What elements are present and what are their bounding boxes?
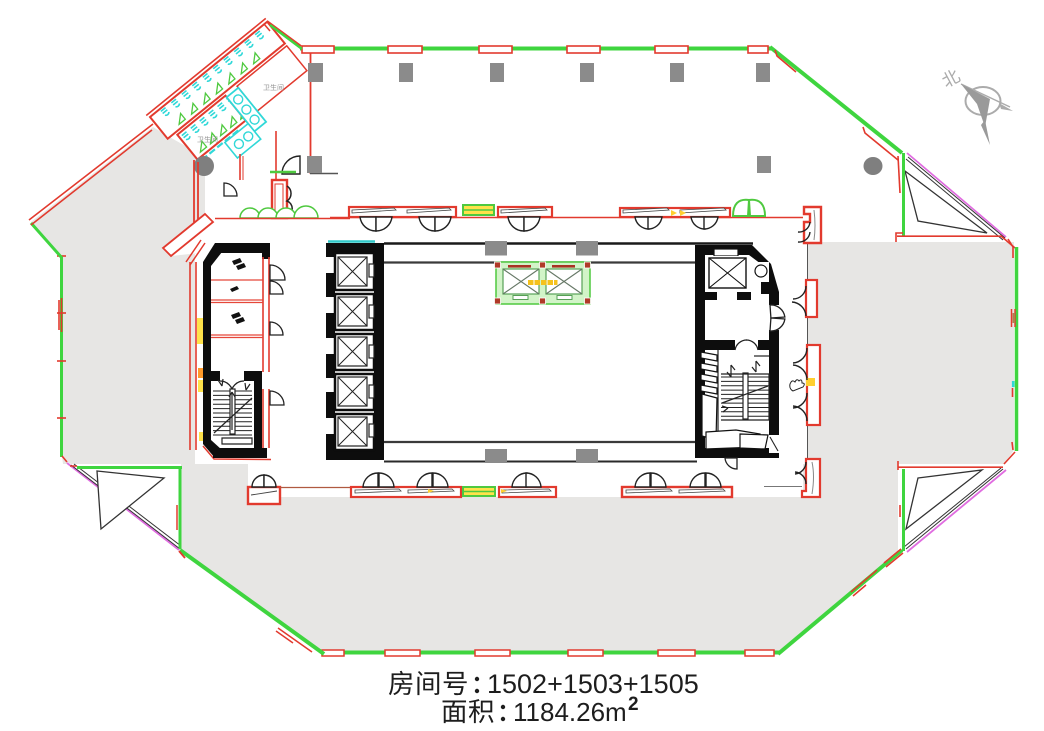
- svg-text:1184.26m: 1184.26m: [513, 697, 627, 727]
- svg-text:2: 2: [628, 694, 639, 715]
- svg-text:1502+1503+1505: 1502+1503+1505: [487, 669, 699, 699]
